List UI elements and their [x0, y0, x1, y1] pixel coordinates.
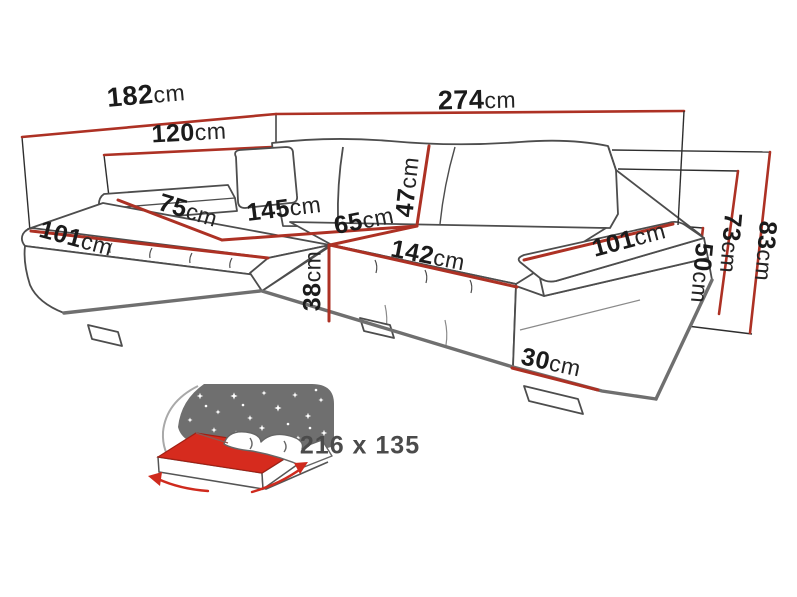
- dim-label-chaise-back: 120cm: [151, 119, 227, 148]
- sofa-foot: [88, 325, 122, 346]
- dim-label-total-width: 274cm: [438, 85, 517, 114]
- dim-label-total-height: 83cm: [750, 220, 780, 282]
- sofa-drawing: [22, 139, 712, 414]
- dim-label-seat-height: 38cm: [301, 251, 326, 311]
- frame-drop-line: [678, 111, 684, 225]
- sofa-backrest: [272, 139, 618, 228]
- dim-line-182: [22, 114, 276, 137]
- dim-label-armrest-height: 50cm: [686, 242, 716, 304]
- sofa-dimension-diagram: 182cm 120cm 274cm 101cm 75cm 145cm 65cm …: [0, 0, 797, 597]
- sleeping-area-size-label: 216 x 135: [300, 432, 420, 461]
- sofa-foot: [524, 386, 583, 414]
- dim-label-back-height: 73cm: [715, 212, 745, 274]
- dim-label-back-cushion: 47cm: [392, 156, 423, 219]
